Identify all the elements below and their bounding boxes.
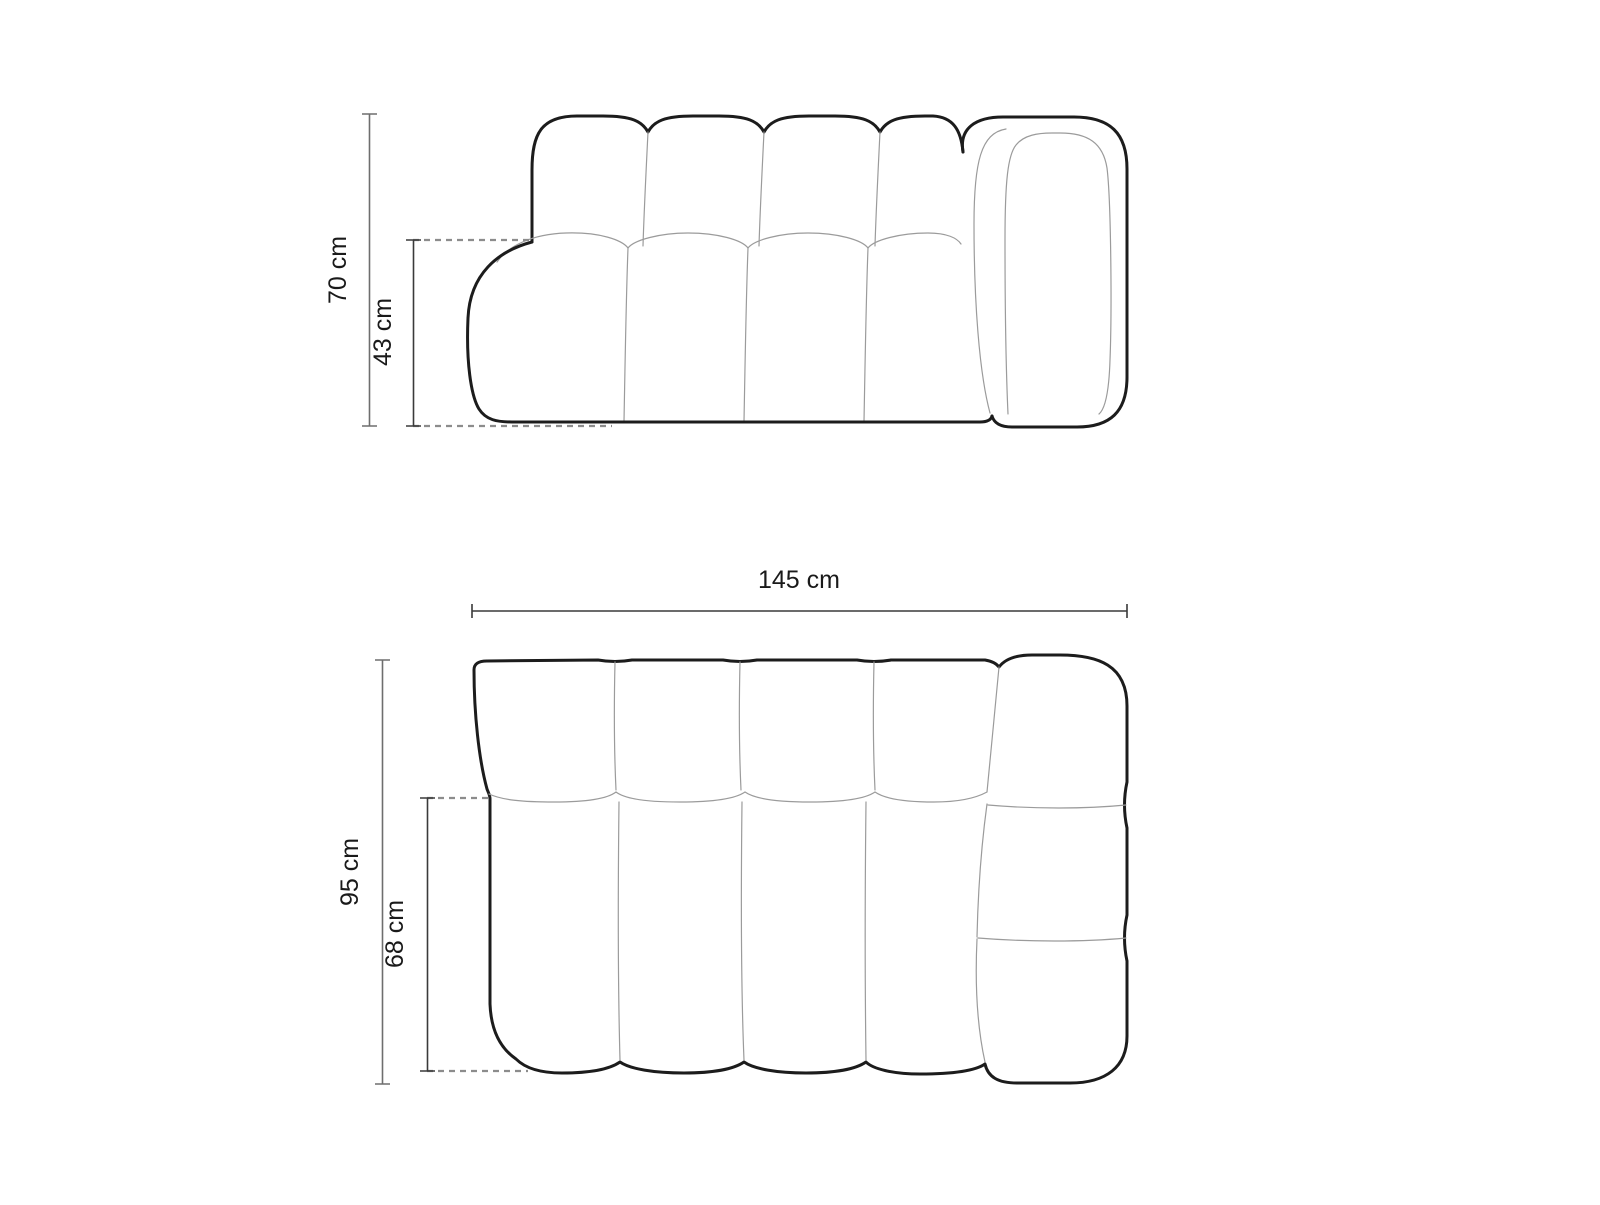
plan-back-cushion-dividers — [614, 662, 875, 790]
front-body-outline — [468, 242, 992, 422]
plan-view: 145 cm 95 cm 68 cm — [336, 566, 1127, 1084]
front-armrest-outline — [962, 117, 1127, 427]
dimension-seat-depth-label: 68 cm — [381, 900, 409, 968]
dimension-seat-depth-line — [420, 798, 435, 1071]
front-armrest-side-band — [974, 129, 1006, 413]
dimension-seat-height-label: 43 cm — [369, 298, 397, 366]
dimension-total-width-label: 145 cm — [758, 566, 840, 594]
dimension-total-width-line — [472, 604, 1127, 618]
sofa-dimension-diagram: 70 cm 43 cm 145 cm 95 c — [0, 0, 1600, 1200]
dimension-total-width: 145 cm — [472, 566, 1127, 618]
dimension-total-height: 70 cm — [324, 114, 377, 426]
dimension-total-depth-label: 95 cm — [336, 838, 364, 906]
dimension-total-height-label: 70 cm — [324, 236, 352, 304]
front-seat-cushion-arcs — [497, 233, 961, 262]
dimension-seat-height: 43 cm — [369, 240, 612, 426]
dimension-total-height-line — [362, 114, 377, 426]
dimension-total-depth-line — [375, 660, 390, 1084]
plan-armrest-left-boundary — [976, 667, 999, 1062]
plan-seat-cushion-dividers — [618, 802, 866, 1060]
dimension-total-depth: 95 cm — [336, 660, 390, 1084]
front-back-cushion-dividers — [643, 132, 880, 246]
dimension-seat-depth: 68 cm — [381, 798, 528, 1071]
plan-outer-outline — [474, 655, 1127, 1083]
diagram-canvas: 70 cm 43 cm 145 cm 95 c — [0, 0, 1600, 1200]
plan-back-seat-seam — [489, 792, 987, 802]
plan-armrest-dividers — [978, 805, 1126, 941]
dimension-seat-height-line — [406, 240, 421, 426]
front-seat-cushion-dividers — [624, 248, 868, 421]
front-view: 70 cm 43 cm — [324, 114, 1127, 427]
front-back-cushions-outline — [532, 116, 963, 242]
front-armrest-inner-panel — [1005, 133, 1111, 414]
